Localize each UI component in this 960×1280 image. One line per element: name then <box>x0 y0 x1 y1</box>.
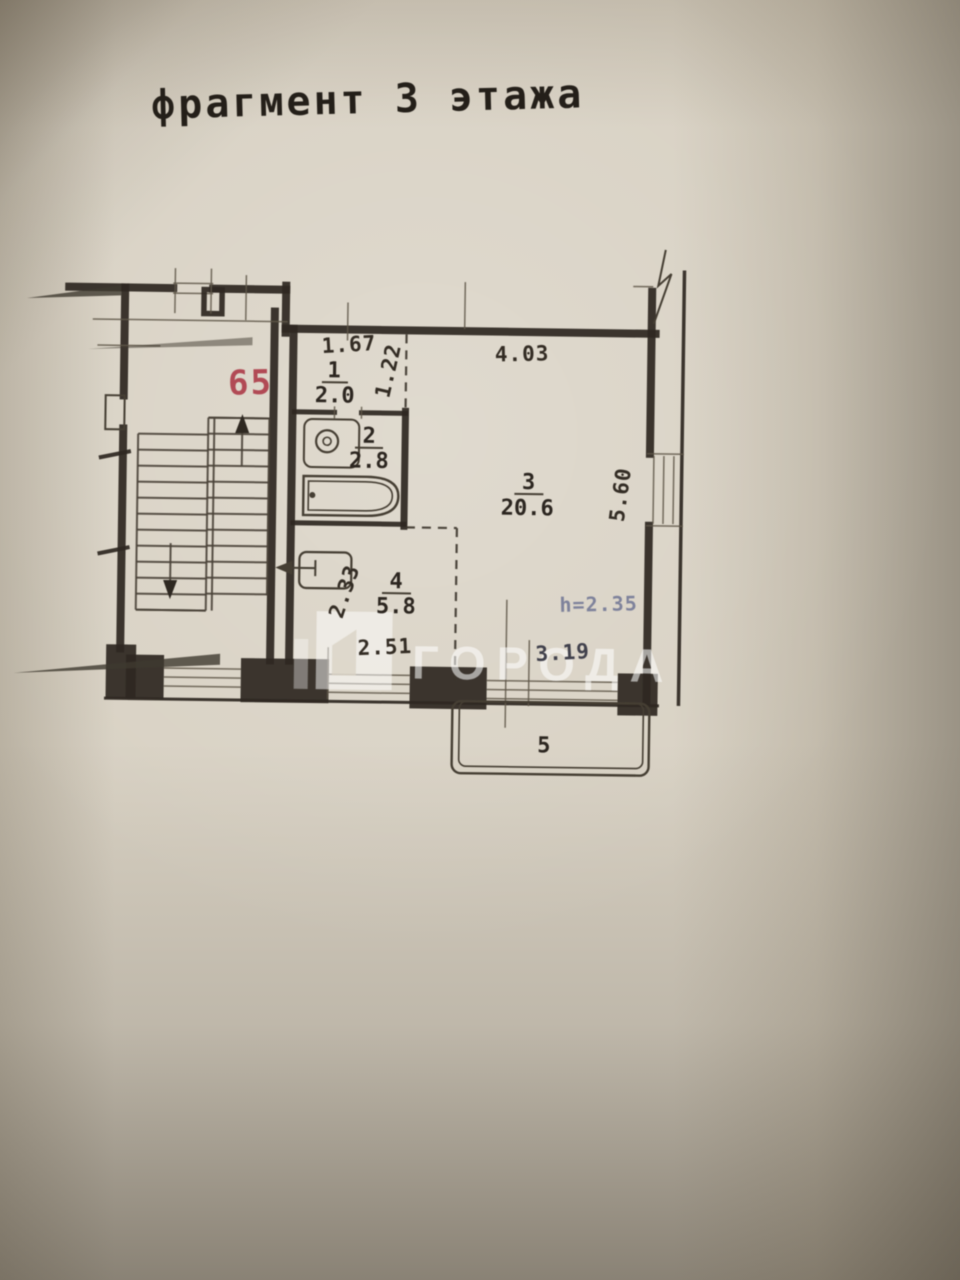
room-bathroom-number: 2 <box>362 424 376 449</box>
stairs-down-arrow-icon <box>163 543 178 599</box>
stairs-up-arrow-icon <box>235 414 250 466</box>
watermark-logo-fragment <box>294 639 309 689</box>
stair-left-wall <box>120 287 125 648</box>
stairs <box>136 417 270 612</box>
room-living-area: 20.6 <box>501 496 554 522</box>
room-kitchen-area: 5.8 <box>376 594 416 620</box>
window-a <box>164 668 241 687</box>
watermark: ГОРОДА <box>294 611 676 694</box>
wall-break-icon-left <box>88 335 252 351</box>
dim-kitchen-width: 2.51 <box>357 634 412 660</box>
room-balcony-number: 5 <box>537 733 551 758</box>
floor-plan-drawing: фрагмент 3 этажа <box>0 0 960 1280</box>
dim-living-depth: 5.60 <box>605 466 636 523</box>
apartment-west-wall <box>289 329 294 661</box>
room-living-number: 3 <box>522 470 536 495</box>
wall-break-icon-top-right <box>654 250 672 324</box>
bathtub-icon <box>303 476 399 516</box>
dim-hall-width: 1.67 <box>321 331 377 358</box>
dim-living-bottom-width: 3.19 <box>535 639 591 666</box>
room-bathroom-area: 2.8 <box>349 449 389 475</box>
dashed-boundary-hall <box>406 334 407 411</box>
stair-window <box>105 395 124 429</box>
ceiling-height-label: h=2.35 <box>559 591 638 617</box>
room-hall-number: 1 <box>327 358 341 383</box>
dim-living-width: 4.03 <box>495 341 550 366</box>
room-hall-area: 2.0 <box>315 383 355 409</box>
apartment-number: 65 <box>228 363 274 404</box>
floor-plan-photo: фрагмент 3 этажа <box>0 0 960 1280</box>
right-wall-outer <box>678 272 684 704</box>
room-kitchen-number: 4 <box>389 569 403 594</box>
bathroom-top-wall <box>295 412 406 414</box>
bathroom-bottom-wall <box>293 523 404 525</box>
bathroom-right-wall <box>404 411 406 526</box>
page-title: фрагмент 3 этажа <box>150 71 584 128</box>
right-window <box>646 454 684 527</box>
